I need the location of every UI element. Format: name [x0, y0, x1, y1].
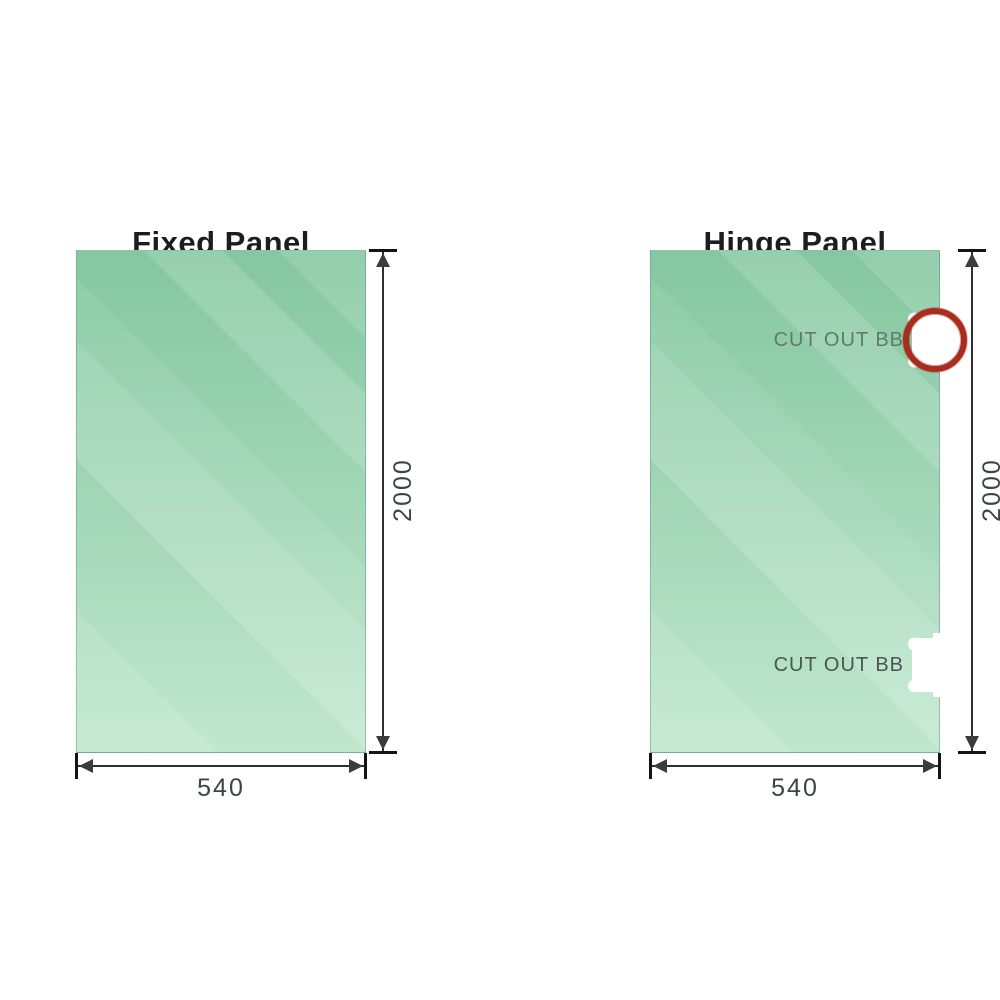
arrow-up-icon — [376, 253, 390, 267]
cutout-notch-icon — [907, 633, 953, 697]
fixed-panel-glass — [76, 250, 366, 753]
hinge-panel-figure: Hinge Panel CUT OUT BB CUT OUT BB — [650, 250, 940, 753]
arrow-right-icon — [923, 759, 937, 773]
dimension-tick-top — [369, 249, 397, 252]
dimension-line-horizontal — [650, 765, 940, 767]
arrow-right-icon — [349, 759, 363, 773]
diagram-canvas: Fixed Panel 2000 540 Hinge Panel CUT OUT… — [0, 0, 1000, 1000]
arrow-up-icon — [965, 253, 979, 267]
dimension-tick-top — [958, 249, 986, 252]
dimension-line-vertical — [971, 250, 973, 753]
dimension-tick-bottom — [369, 751, 397, 754]
fixed-panel-width-dimension: 540 — [76, 753, 366, 813]
fixed-panel-figure: Fixed Panel 2000 540 — [76, 250, 366, 753]
dimension-line-vertical — [382, 250, 384, 753]
arrow-left-icon — [79, 759, 93, 773]
width-dimension-label: 540 — [76, 774, 366, 803]
height-dimension-label: 2000 — [390, 430, 416, 550]
cutout-label: CUT OUT BB — [774, 652, 904, 678]
dimension-tick-bottom — [958, 751, 986, 754]
arrow-left-icon — [653, 759, 667, 773]
width-dimension-label: 540 — [650, 774, 940, 803]
dimension-line-horizontal — [76, 765, 366, 767]
height-dimension-label: 2000 — [979, 430, 1000, 550]
arrow-down-icon — [376, 736, 390, 750]
hinge-panel-width-dimension: 540 — [650, 753, 940, 813]
highlight-circle-icon — [903, 308, 967, 372]
arrow-down-icon — [965, 736, 979, 750]
cutout-label: CUT OUT BB — [774, 327, 904, 353]
